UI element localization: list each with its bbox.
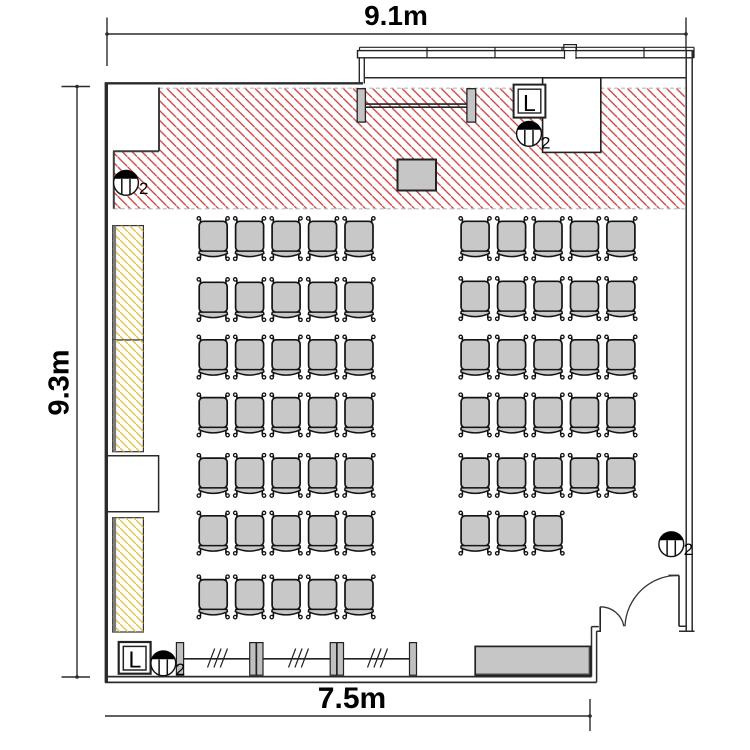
svg-text:7.5m: 7.5m bbox=[318, 682, 386, 715]
svg-text:2: 2 bbox=[176, 660, 185, 679]
svg-text:2: 2 bbox=[541, 134, 550, 153]
svg-text:9.1m: 9.1m bbox=[364, 0, 428, 31]
svg-text:L: L bbox=[523, 90, 536, 116]
svg-text:2: 2 bbox=[139, 179, 148, 198]
svg-text:L: L bbox=[129, 647, 142, 673]
svg-text:9.3m: 9.3m bbox=[44, 349, 76, 415]
svg-text:2: 2 bbox=[684, 540, 693, 559]
